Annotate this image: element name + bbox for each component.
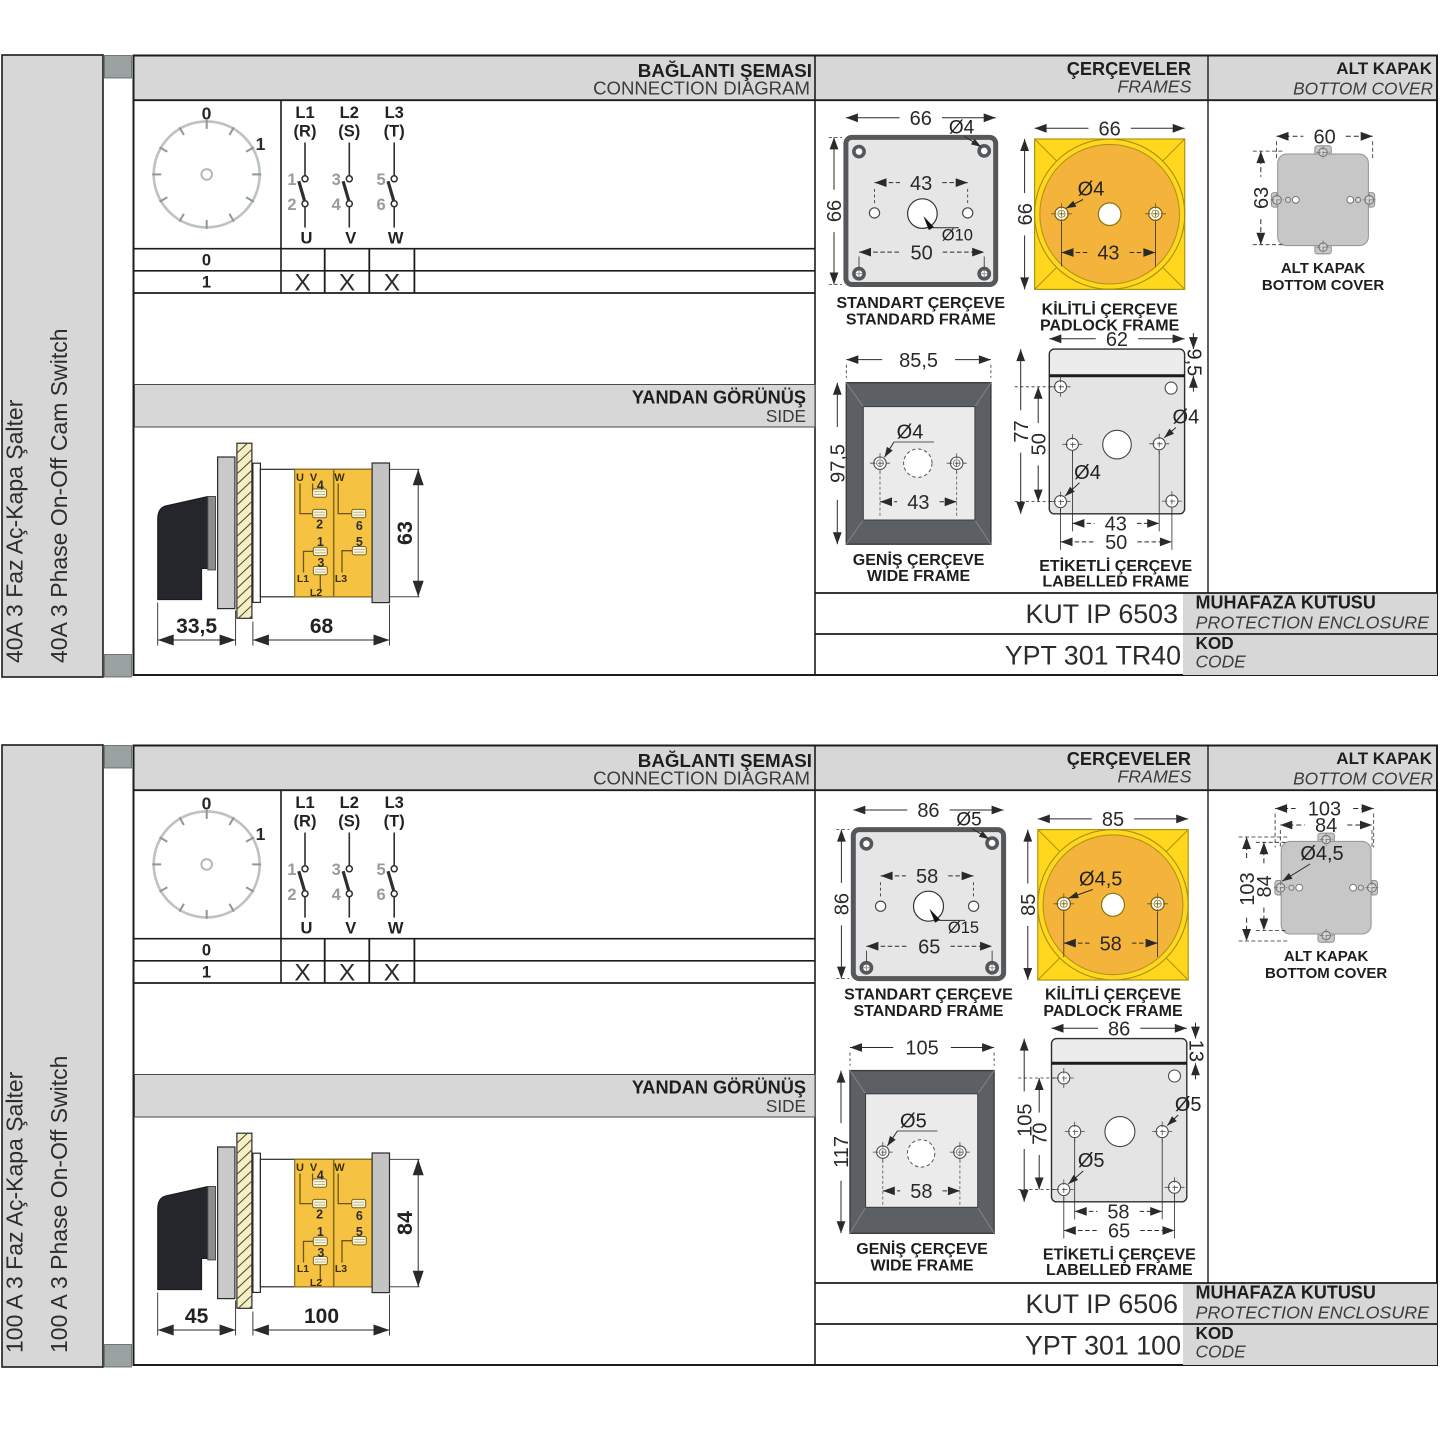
svg-text:4: 4 [317, 1169, 324, 1183]
svg-text:1: 1 [317, 535, 324, 549]
svg-text:U: U [301, 230, 313, 248]
svg-text:84: 84 [1315, 815, 1337, 837]
svg-text:58: 58 [1100, 933, 1122, 955]
svg-text:50: 50 [1028, 433, 1050, 455]
svg-text:100: 100 [304, 1305, 339, 1328]
svg-text:Ø4: Ø4 [949, 117, 975, 138]
svg-text:L1: L1 [297, 1263, 309, 1275]
svg-text:1: 1 [317, 1225, 324, 1239]
svg-text:KUT IP 6506: KUT IP 6506 [1026, 1289, 1178, 1319]
svg-text:SIDE: SIDE [766, 1096, 806, 1116]
svg-text:Ø10: Ø10 [942, 227, 973, 245]
svg-text:U: U [296, 1162, 304, 1174]
svg-text:PROTECTION ENCLOSURE: PROTECTION ENCLOSURE [1196, 613, 1431, 633]
svg-text:L3: L3 [385, 104, 404, 122]
svg-text:85,5: 85,5 [899, 350, 938, 372]
svg-text:W: W [334, 472, 345, 484]
svg-text:L1: L1 [295, 104, 314, 122]
svg-text:V: V [345, 920, 356, 938]
svg-text:0: 0 [202, 251, 211, 269]
svg-text:W: W [388, 920, 404, 938]
svg-text:Ø5: Ø5 [1175, 1094, 1202, 1116]
svg-text:X: X [384, 960, 400, 987]
svg-text:1: 1 [256, 134, 266, 154]
svg-text:X: X [294, 270, 310, 297]
svg-text:0: 0 [202, 941, 211, 959]
svg-text:L3: L3 [385, 794, 404, 812]
svg-text:LABELLED FRAME: LABELLED FRAME [1046, 1262, 1193, 1279]
svg-text:KUT IP 6503: KUT IP 6503 [1026, 599, 1178, 629]
svg-text:Ø4: Ø4 [897, 422, 924, 444]
svg-text:86: 86 [917, 800, 939, 822]
svg-text:CONNECTION DIAGRAM: CONNECTION DIAGRAM [593, 768, 810, 789]
svg-text:105: 105 [905, 1038, 938, 1060]
svg-text:Ø5: Ø5 [1078, 1150, 1105, 1172]
svg-text:Ø4: Ø4 [1173, 407, 1200, 429]
svg-text:FRAMES: FRAMES [1117, 767, 1191, 787]
svg-text:6: 6 [377, 196, 386, 214]
svg-text:KOD: KOD [1196, 1323, 1234, 1343]
svg-text:65: 65 [918, 936, 940, 958]
svg-text:33,5: 33,5 [176, 615, 217, 638]
svg-text:YANDAN GÖRÜNÜŞ: YANDAN GÖRÜNÜŞ [632, 1078, 806, 1098]
svg-text:60: 60 [1313, 127, 1335, 149]
svg-text:6: 6 [356, 1209, 363, 1223]
svg-text:BOTTOM COVER: BOTTOM COVER [1265, 965, 1387, 982]
svg-text:BOTTOM COVER: BOTTOM COVER [1293, 769, 1433, 789]
svg-text:(S): (S) [338, 813, 360, 831]
svg-text:ALT KAPAK: ALT KAPAK [1281, 260, 1366, 277]
svg-text:85: 85 [1018, 894, 1040, 916]
svg-text:V: V [345, 230, 356, 248]
svg-text:MUHAFAZA KUTUSU: MUHAFAZA KUTUSU [1196, 1283, 1376, 1303]
svg-text:KİLİTLİ ÇERÇEVE: KİLİTLİ ÇERÇEVE [1042, 300, 1178, 318]
svg-text:5: 5 [356, 1225, 363, 1239]
svg-text:WIDE FRAME: WIDE FRAME [867, 568, 970, 585]
svg-text:5: 5 [377, 171, 386, 189]
svg-text:13: 13 [1185, 1040, 1207, 1062]
svg-text:L1: L1 [295, 794, 314, 812]
svg-text:STANDARD FRAME: STANDARD FRAME [846, 312, 996, 329]
svg-text:4: 4 [332, 196, 342, 214]
svg-text:Ø4,5: Ø4,5 [1079, 869, 1122, 891]
svg-text:3: 3 [332, 171, 341, 189]
svg-text:W: W [388, 230, 404, 248]
svg-text:63: 63 [393, 521, 417, 545]
svg-text:X: X [339, 270, 355, 297]
svg-text:YANDAN GÖRÜNÜŞ: YANDAN GÖRÜNÜŞ [632, 388, 806, 408]
svg-text:FRAMES: FRAMES [1117, 77, 1191, 97]
svg-text:Ø15: Ø15 [948, 919, 979, 937]
svg-text:5: 5 [356, 535, 363, 549]
svg-text:W: W [334, 1162, 345, 1174]
svg-text:(R): (R) [294, 123, 317, 141]
svg-text:5: 5 [377, 861, 386, 879]
svg-text:84: 84 [1254, 875, 1276, 897]
svg-text:1: 1 [256, 824, 266, 844]
svg-text:58: 58 [916, 866, 938, 888]
svg-text:U: U [296, 472, 304, 484]
svg-text:40A 3 Faz Aç-Kapa Şalter: 40A 3 Faz Aç-Kapa Şalter [2, 399, 28, 663]
svg-text:X: X [294, 960, 310, 987]
svg-text:86: 86 [832, 893, 854, 915]
svg-text:0: 0 [202, 794, 212, 814]
svg-text:MUHAFAZA KUTUSU: MUHAFAZA KUTUSU [1196, 593, 1376, 613]
svg-text:X: X [339, 960, 355, 987]
svg-text:65: 65 [1108, 1221, 1130, 1243]
svg-text:WIDE FRAME: WIDE FRAME [870, 1257, 973, 1274]
svg-text:L2: L2 [310, 587, 322, 599]
svg-text:3: 3 [332, 861, 341, 879]
svg-text:SIDE: SIDE [766, 406, 806, 426]
svg-text:L1: L1 [297, 573, 309, 585]
svg-text:L3: L3 [335, 573, 347, 585]
svg-text:Ø5: Ø5 [900, 1111, 927, 1133]
svg-text:PADLOCK FRAME: PADLOCK FRAME [1043, 1003, 1183, 1020]
svg-text:97,5: 97,5 [828, 444, 850, 483]
svg-text:YPT 301 100: YPT 301 100 [1025, 1331, 1181, 1361]
svg-text:9,5: 9,5 [1182, 348, 1204, 376]
svg-text:2: 2 [287, 886, 296, 904]
svg-text:1: 1 [287, 171, 296, 189]
svg-text:CODE: CODE [1196, 651, 1247, 671]
svg-text:3: 3 [317, 556, 324, 570]
svg-text:CODE: CODE [1196, 1341, 1247, 1361]
svg-text:6: 6 [356, 519, 363, 533]
svg-text:66: 66 [910, 108, 932, 130]
svg-text:U: U [301, 920, 313, 938]
svg-text:(T): (T) [384, 813, 405, 831]
svg-text:KOD: KOD [1196, 633, 1234, 653]
svg-text:84: 84 [393, 1211, 417, 1235]
svg-text:66: 66 [824, 200, 846, 222]
svg-text:117: 117 [831, 1136, 853, 1168]
svg-text:85: 85 [1102, 809, 1124, 831]
svg-text:1: 1 [202, 274, 211, 292]
svg-text:YPT 301 TR40: YPT 301 TR40 [1005, 641, 1181, 671]
svg-text:ETİKETLİ ÇERÇEVE: ETİKETLİ ÇERÇEVE [1043, 1245, 1196, 1263]
svg-text:4: 4 [332, 886, 342, 904]
svg-text:Ø4,5: Ø4,5 [1300, 843, 1343, 865]
svg-text:66: 66 [1015, 203, 1037, 225]
svg-text:3: 3 [317, 1246, 324, 1260]
svg-text:L3: L3 [335, 1263, 347, 1275]
svg-text:PROTECTION ENCLOSURE: PROTECTION ENCLOSURE [1196, 1303, 1431, 1323]
svg-text:CONNECTION DIAGRAM: CONNECTION DIAGRAM [593, 78, 810, 99]
svg-text:86: 86 [1108, 1019, 1130, 1041]
svg-text:GENİŞ ÇERÇEVE: GENİŞ ÇERÇEVE [856, 1240, 988, 1258]
svg-text:LABELLED FRAME: LABELLED FRAME [1042, 574, 1189, 591]
svg-text:(S): (S) [338, 123, 360, 141]
svg-text:66: 66 [1099, 119, 1121, 141]
svg-text:ALT KAPAK: ALT KAPAK [1336, 749, 1432, 768]
svg-text:45: 45 [185, 1305, 209, 1328]
svg-text:68: 68 [310, 615, 334, 638]
svg-text:Ø5: Ø5 [956, 810, 981, 831]
svg-text:43: 43 [1097, 243, 1119, 265]
svg-text:1: 1 [287, 861, 296, 879]
svg-text:2: 2 [287, 196, 296, 214]
svg-text:43: 43 [910, 173, 932, 195]
svg-text:58: 58 [910, 1181, 932, 1203]
svg-text:50: 50 [910, 242, 932, 264]
svg-text:100 A 3 Phase On-Off Switch: 100 A 3 Phase On-Off Switch [46, 1056, 72, 1353]
svg-text:Ø4: Ø4 [1078, 179, 1105, 201]
svg-text:(R): (R) [294, 813, 317, 831]
svg-text:40A 3 Phase On-Off Cam Switch: 40A 3 Phase On-Off Cam Switch [46, 328, 72, 663]
svg-text:2: 2 [316, 1208, 323, 1222]
svg-text:62: 62 [1106, 329, 1128, 351]
svg-text:L2: L2 [340, 104, 359, 122]
svg-text:ALT KAPAK: ALT KAPAK [1284, 948, 1369, 965]
svg-text:63: 63 [1251, 187, 1273, 209]
svg-text:BOTTOM COVER: BOTTOM COVER [1293, 79, 1433, 99]
svg-text:STANDART ÇERÇEVE: STANDART ÇERÇEVE [844, 987, 1013, 1004]
svg-text:STANDART ÇERÇEVE: STANDART ÇERÇEVE [836, 295, 1005, 312]
svg-text:Ø4: Ø4 [1074, 462, 1101, 484]
svg-text:4: 4 [317, 479, 324, 493]
svg-text:2: 2 [316, 518, 323, 532]
svg-text:(T): (T) [384, 123, 405, 141]
svg-text:STANDARD FRAME: STANDARD FRAME [853, 1003, 1003, 1020]
svg-text:L2: L2 [310, 1277, 322, 1289]
svg-text:70: 70 [1029, 1123, 1051, 1145]
svg-text:ETİKETLİ ÇERÇEVE: ETİKETLİ ÇERÇEVE [1039, 557, 1192, 575]
svg-text:1: 1 [202, 964, 211, 982]
svg-text:50: 50 [1105, 532, 1127, 554]
svg-text:X: X [384, 270, 400, 297]
svg-text:BOTTOM COVER: BOTTOM COVER [1262, 277, 1384, 294]
svg-text:0: 0 [202, 104, 212, 124]
svg-text:L2: L2 [340, 794, 359, 812]
svg-text:ALT KAPAK: ALT KAPAK [1336, 59, 1432, 78]
svg-text:6: 6 [377, 886, 386, 904]
svg-text:43: 43 [907, 492, 929, 514]
svg-text:100 A 3 Faz Aç-Kapa Şalter: 100 A 3 Faz Aç-Kapa Şalter [2, 1071, 28, 1353]
svg-text:GENİŞ ÇERÇEVE: GENİŞ ÇERÇEVE [853, 551, 985, 569]
svg-text:KİLİTLİ ÇERÇEVE: KİLİTLİ ÇERÇEVE [1045, 986, 1181, 1004]
